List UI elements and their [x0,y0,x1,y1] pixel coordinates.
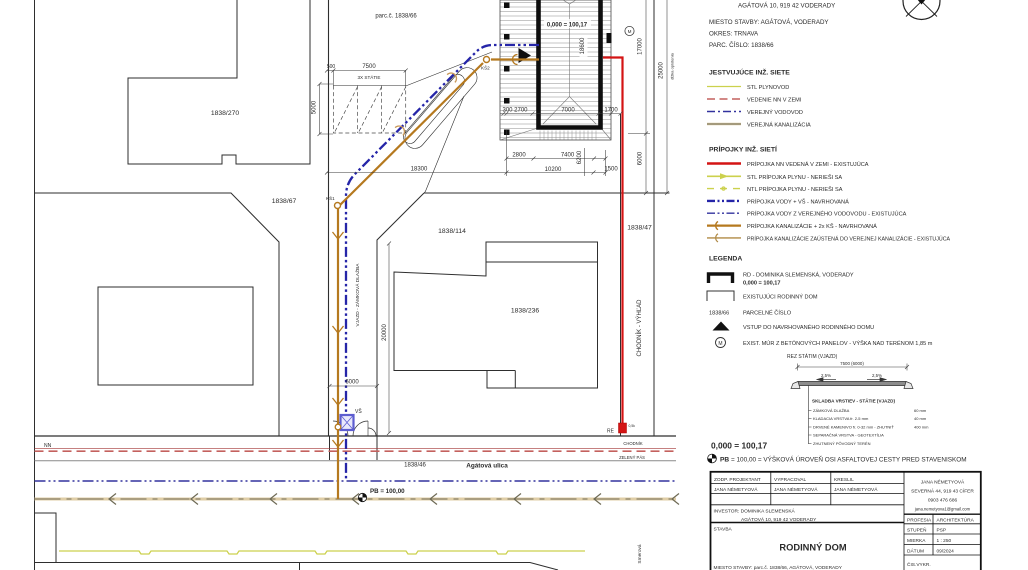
svg-text:SEVERNÁ 44, 919 43 CÍFER: SEVERNÁ 44, 919 43 CÍFER [911,488,974,495]
svg-text:1838/67: 1838/67 [272,198,297,205]
svg-text:JANA NÉMETYOVÁ: JANA NÉMETYOVÁ [921,479,965,486]
svg-text:09/2024: 09/2024 [937,549,955,555]
svg-text:JANA NÉMETYOVÁ: JANA NÉMETYOVÁ [714,486,758,493]
svg-text:dĺžka oplotenia: dĺžka oplotenia [670,52,675,79]
svg-text:RE: RE [607,429,615,435]
svg-text:MIESTO STAVBY: AGÁTOVÁ, VODERA: MIESTO STAVBY: AGÁTOVÁ, VODERADY [709,19,829,26]
svg-text:NTL PRÍPOJKA PLYNU - NERIEŠI S: NTL PRÍPOJKA PLYNU - NERIEŠI SA [747,186,843,193]
svg-text:PARC. ČÍSLO: 1838/66: PARC. ČÍSLO: 1838/66 [709,42,774,49]
svg-text:PRÍPOJKA VODY + VŠ - NAVRHOVAN: PRÍPOJKA VODY + VŠ - NAVRHOVANÁ [747,198,849,205]
svg-text:ARCHITEKTÚRA: ARCHITEKTÚRA [937,517,975,524]
svg-text:18600: 18600 [580,37,586,54]
svg-text:3X STÁTIE: 3X STÁTIE [358,74,381,80]
svg-text:PB = 100,00: PB = 100,00 [370,488,405,495]
svg-text:CHODNÍK - VÝHĽAD: CHODNÍK - VÝHĽAD [636,299,643,357]
svg-text:VYPRACOVAL: VYPRACOVAL [774,477,807,483]
svg-text:STUPEŇ: STUPEŇ [907,527,927,534]
svg-text:M: M [628,29,632,34]
svg-text:NN: NN [44,443,52,449]
svg-text:RD - DOMINIKA SLEMENSKÁ, VODER: RD - DOMINIKA SLEMENSKÁ, VODERADY [743,272,854,279]
svg-text:ZELENÝ PÁS: ZELENÝ PÁS [619,455,645,460]
svg-text:25000: 25000 [659,61,665,78]
svg-text:STAVBA: STAVBA [714,527,733,533]
svg-text:18300: 18300 [411,167,428,173]
svg-text:JANA NÉMETYOVÁ: JANA NÉMETYOVÁ [834,486,878,493]
svg-text:PRÍPOJKA VODY Z VEREJNÉHO VODO: PRÍPOJKA VODY Z VEREJNÉHO VODOVODU - EXI… [747,211,907,218]
svg-text:300 2700: 300 2700 [502,108,528,114]
svg-text:0,000 = 100,17: 0,000 = 100,17 [743,281,780,287]
svg-text:2,5%: 2,5% [821,373,831,378]
svg-text:RODINNÝ DOM: RODINNÝ DOM [779,542,846,553]
svg-text:2,5%: 2,5% [872,373,882,378]
svg-text:STL PLYNOVOD: STL PLYNOVOD [747,85,789,91]
svg-text:1 : 250: 1 : 250 [937,538,952,544]
svg-text:KLADACIA VRSTVA fr. 2-5 mm: KLADACIA VRSTVA fr. 2-5 mm [813,416,869,421]
svg-text:7000: 7000 [561,108,575,114]
svg-text:1838/47: 1838/47 [627,225,652,232]
svg-text:1838/270: 1838/270 [211,110,240,117]
svg-text:= 100,00 = VÝŠKOVÁ ÚROVEŇ OSI: = 100,00 = VÝŠKOVÁ ÚROVEŇ OSI ASFALTOVEJ… [731,455,967,464]
svg-text:LEGENDA: LEGENDA [709,256,742,263]
svg-text:PARCELNÉ ČÍSLO: PARCELNÉ ČÍSLO [743,310,792,317]
svg-text:1838/46: 1838/46 [404,463,426,469]
svg-text:jana.nemetyova1@gmail.com: jana.nemetyova1@gmail.com [914,507,971,512]
svg-text:INVESTOR: DOMINIKA SLEMENSKÁ: INVESTOR: DOMINIKA SLEMENSKÁ [714,508,796,515]
svg-text:10200: 10200 [545,167,562,173]
svg-text:1500: 1500 [604,167,618,173]
svg-text:KŠ2: KŠ2 [481,65,490,71]
svg-text:Agátová ulica: Agátová ulica [466,463,508,470]
svg-text:EXISTUJÚCI RODINNÝ DOM: EXISTUJÚCI RODINNÝ DOM [743,294,818,301]
svg-text:VEREJNÝ VODOVOD: VEREJNÝ VODOVOD [747,109,803,116]
svg-text:ČIS.VYKR.: ČIS.VYKR. [907,561,931,568]
svg-text:0,000 = 100,17: 0,000 = 100,17 [547,23,588,29]
svg-text:PROFESIA: PROFESIA [907,518,932,524]
svg-text:1838/236: 1838/236 [511,308,540,315]
svg-text:M: M [718,341,722,347]
svg-text:60 mm: 60 mm [914,408,927,413]
svg-text:SEPARAČNÁ VRSTVA - GEOTEXTÍLIA: SEPARAČNÁ VRSTVA - GEOTEXTÍLIA [813,433,884,438]
svg-text:PRÍPOJKY INŽ. SIETÍ: PRÍPOJKY INŽ. SIETÍ [709,145,778,154]
svg-text:VŠ: VŠ [355,408,362,415]
svg-text:PB: PB [720,457,729,464]
svg-text:REZ STÁTIM (VJAZD): REZ STÁTIM (VJAZD) [787,353,838,360]
svg-text:20000: 20000 [382,323,388,340]
svg-text:ZÁMKOVÁ DLAŽBA: ZÁMKOVÁ DLAŽBA [813,408,850,413]
svg-text:CHODNÍK: CHODNÍK [623,441,643,446]
svg-text:STL PRÍPOJKA PLYNU - NERIEŠI S: STL PRÍPOJKA PLYNU - NERIEŠI SA [747,174,842,181]
svg-text:7500 (6000): 7500 (6000) [840,361,864,366]
svg-text:2800: 2800 [512,153,526,159]
svg-text:ZODP. PROJEKTANT: ZODP. PROJEKTANT [714,477,761,483]
svg-text:OKRES: TRNAVA: OKRES: TRNAVA [709,31,759,38]
svg-text:PRÍPOJKA NN VEDENÁ V ZEMI - EX: PRÍPOJKA NN VEDENÁ V ZEMI - EXISTUJÚCA [747,161,869,168]
svg-text:PRÍPOJKA KANALIZÁCIE ZAÚSTENÁ: PRÍPOJKA KANALIZÁCIE ZAÚSTENÁ DO VEREJNE… [747,235,951,242]
svg-text:PRÍPOJKA KANALIZÁCIE + 2x KŠ -: PRÍPOJKA KANALIZÁCIE + 2x KŠ - NAVRHOVAN… [747,223,877,230]
svg-text:5000: 5000 [312,100,318,114]
svg-text:ZHUTNENÝ PÔVODNÝ TERÉN: ZHUTNENÝ PÔVODNÝ TERÉN [813,441,871,446]
svg-text:6000: 6000 [638,151,644,165]
svg-text:VEDENIE NN V ZEMI: VEDENIE NN V ZEMI [747,98,802,104]
svg-text:PSP: PSP [937,528,947,534]
svg-text:500: 500 [327,64,336,70]
svg-text:DRVENÉ KAMENIVO fr. 0-32 mm -: DRVENÉ KAMENIVO fr. 0-32 mm - ZHUTNIŤ [813,425,894,430]
svg-text:400 mm: 400 mm [914,425,929,430]
svg-text:VSTUP DO NAVRHOVANÉHO RODINNÉH: VSTUP DO NAVRHOVANÉHO RODINNÉHO DOMU [743,324,874,331]
svg-text:Smerová: Smerová [637,544,643,564]
svg-text:0903 476 686: 0903 476 686 [928,498,958,504]
svg-text:MIERKA: MIERKA [907,538,926,544]
svg-text:AGÁTOVÁ 10, 919 42 VODERADY: AGÁTOVÁ 10, 919 42 VODERADY [738,3,835,10]
svg-text:SKLADBA VRSTIEV - STÁTIE (VJAZ: SKLADBA VRSTIEV - STÁTIE (VJAZD) [812,398,896,404]
svg-text:6000: 6000 [345,380,359,386]
svg-text:KRESLIL: KRESLIL [834,477,854,483]
svg-text:7500: 7500 [362,64,376,70]
svg-text:40 mm: 40 mm [914,416,927,421]
svg-text:1838/66: 1838/66 [709,311,729,317]
svg-text:KŠ1: KŠ1 [326,195,335,201]
svg-text:6200: 6200 [577,150,583,164]
svg-text:1700: 1700 [604,108,618,114]
svg-text:17000: 17000 [638,37,644,54]
svg-text:7400: 7400 [561,153,575,159]
svg-text:JESTVUJÚCE INŽ. SIETE: JESTVUJÚCE INŽ. SIETE [709,68,790,77]
svg-text:0,5k: 0,5k [629,424,636,428]
svg-text:0,000 = 100,17: 0,000 = 100,17 [711,441,767,451]
svg-text:EXIST. MÚR Z BETÓNOVÝCH PANELO: EXIST. MÚR Z BETÓNOVÝCH PANELOV - VÝŠKA … [743,340,933,347]
svg-text:DÁTUM: DÁTUM [907,548,924,555]
svg-text:parc.č. 1838/66: parc.č. 1838/66 [375,14,417,20]
svg-text:1838/114: 1838/114 [438,228,466,235]
svg-text:AGÁTOVÁ 10, 919 42 VODERADY: AGÁTOVÁ 10, 919 42 VODERADY [741,516,817,523]
svg-text:VEREJNÁ KANALIZÁCIA: VEREJNÁ KANALIZÁCIA [747,122,811,129]
svg-text:JANA NÉMETYOVÁ: JANA NÉMETYOVÁ [774,486,818,493]
